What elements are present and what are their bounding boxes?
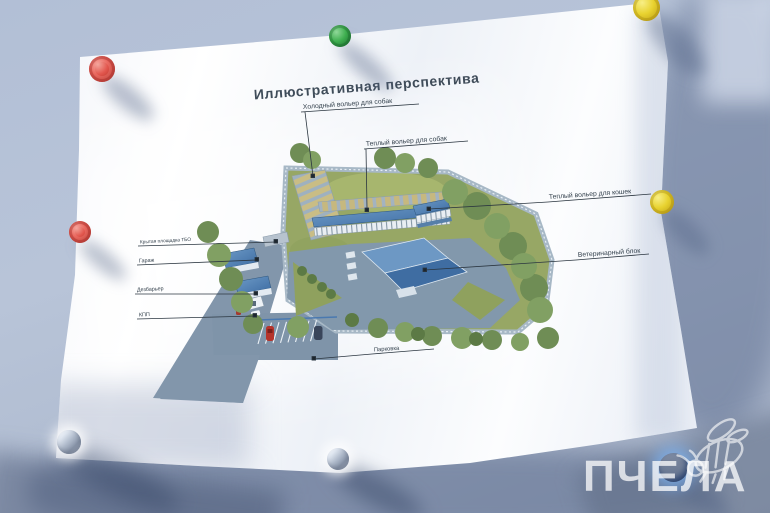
watermark-text: ПЧЕЛА — [583, 455, 748, 499]
svg-text:Дезбарьер: Дезбарьер — [137, 286, 164, 293]
dark-car — [314, 326, 323, 340]
svg-text:Гараж: Гараж — [139, 258, 155, 265]
magnet-metal-bottom-center-icon — [327, 448, 349, 470]
red-car — [266, 326, 274, 341]
magnet-red-top-left-icon — [89, 56, 115, 82]
magnet-yellow-right-icon — [650, 190, 674, 214]
svg-text:Крытая площадка ТБО: Крытая площадка ТБО — [140, 237, 192, 246]
magnet-green-top-center-icon — [329, 25, 351, 47]
svg-text:КПП: КПП — [139, 312, 150, 319]
photo-of-poster: Иллюстративная перспектива — [0, 0, 770, 513]
wall-highlight — [702, 0, 770, 103]
magnet-red-left-icon — [69, 221, 91, 243]
magnet-metal-bottom-left-icon — [57, 430, 81, 454]
